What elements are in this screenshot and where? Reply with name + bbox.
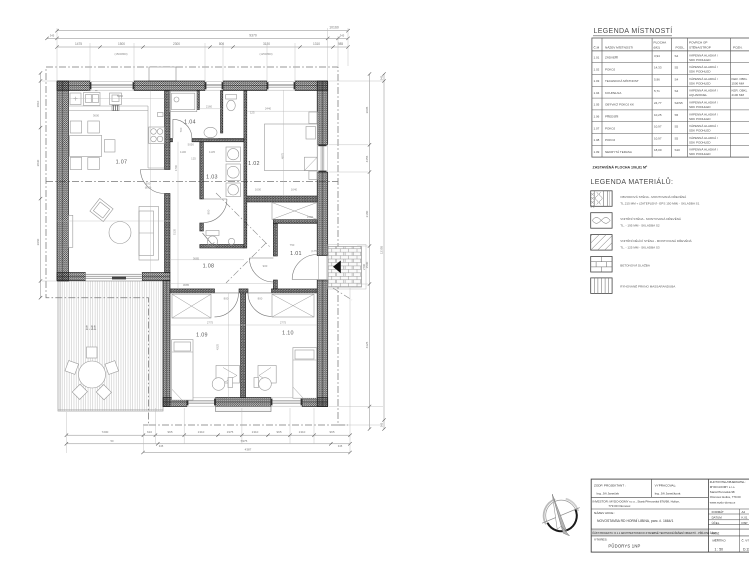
svg-text:50: 50 xyxy=(111,439,114,443)
svg-text:1640: 1640 xyxy=(291,188,298,192)
svg-text:(1500/800): (1500/800) xyxy=(115,52,128,56)
svg-text:NEKRYTÁ TERASA: NEKRYTÁ TERASA xyxy=(605,150,632,154)
svg-text:KER. OBKL: KER. OBKL xyxy=(732,89,748,93)
svg-text:POKOJ: POKOJ xyxy=(605,138,616,142)
svg-text:LEGENDA MATERIÁLŮ:: LEGENDA MATERIÁLŮ: xyxy=(591,177,674,186)
svg-text:800: 800 xyxy=(258,297,263,301)
svg-text:ZODP. PROJEKTANT :: ZODP. PROJEKTANT : xyxy=(594,483,626,487)
svg-text:SDK PODHLED: SDK PODHLED xyxy=(689,58,711,62)
svg-text:2440: 2440 xyxy=(265,107,272,111)
svg-text:750: 750 xyxy=(290,243,295,247)
svg-text:10,97: 10,97 xyxy=(654,136,662,140)
svg-text:S5: S5 xyxy=(675,125,679,129)
svg-text:1975: 1975 xyxy=(227,430,234,434)
svg-text:1500 MM: 1500 MM xyxy=(732,81,745,85)
svg-text:12355: 12355 xyxy=(380,245,384,254)
svg-text:1.03: 1.03 xyxy=(594,79,600,83)
svg-text:TECHNICKÁ MÍSTNOST: TECHNICKÁ MÍSTNOST xyxy=(605,79,639,83)
svg-text:1.03: 1.03 xyxy=(206,175,218,181)
svg-text:4325: 4325 xyxy=(215,343,219,350)
svg-text:1.08: 1.08 xyxy=(203,264,215,270)
svg-text:VNITŘNÍ STĚNA - MONTOVANÁ DŘEV: VNITŘNÍ STĚNA - MONTOVANÁ DŘEVĚNÁ xyxy=(620,216,682,221)
svg-text:3,94: 3,94 xyxy=(654,54,660,58)
svg-text:DSP: DSP xyxy=(742,521,748,525)
svg-text:SDK PODHLED: SDK PODHLED xyxy=(689,70,711,74)
svg-text:800: 800 xyxy=(207,209,211,214)
svg-text:SDK PODHLED: SDK PODHLED xyxy=(689,81,711,85)
svg-text:(1250/800): (1250/800) xyxy=(260,52,273,56)
svg-text:3120: 3120 xyxy=(263,42,270,46)
svg-text:FORMÁT: FORMÁT xyxy=(712,510,724,514)
svg-text:TL. - 195 MM - SKLADBA S2: TL. - 195 MM - SKLADBA S2 xyxy=(620,223,660,227)
svg-text:NÁZEV MÍSTNOSTI: NÁZEV MÍSTNOSTI xyxy=(605,45,633,49)
svg-text:BETONOVÁ DLAŽBA: BETONOVÁ DLAŽBA xyxy=(620,262,651,267)
svg-text:5,71: 5,71 xyxy=(654,89,660,93)
svg-text:OBÝVACÍ POKOJ KK: OBÝVACÍ POKOJ KK xyxy=(605,103,634,107)
svg-text:125: 125 xyxy=(191,157,196,161)
svg-text:5135: 5135 xyxy=(173,228,177,235)
svg-text:VÁPENNÁ HLADKÁ /: VÁPENNÁ HLADKÁ / xyxy=(689,112,718,116)
svg-text:1565: 1565 xyxy=(307,215,314,219)
svg-text:VÁPENNÁ HLADKÁ /: VÁPENNÁ HLADKÁ / xyxy=(689,124,718,128)
svg-text:4875: 4875 xyxy=(281,152,285,159)
svg-text:800: 800 xyxy=(219,42,225,46)
svg-text:14,33: 14,33 xyxy=(654,66,662,70)
svg-text:345: 345 xyxy=(338,444,343,448)
svg-text:MYDO-DOMY s.r.o.: MYDO-DOMY s.r.o. xyxy=(710,485,736,489)
svg-text:PARÉ: PARÉ xyxy=(712,530,720,535)
svg-text:5660: 5660 xyxy=(117,94,124,98)
svg-text:RÝHOVANÉ PRKNO MASSARANDUBA: RÝHOVANÉ PRKNO MASSARANDUBA xyxy=(620,284,676,289)
svg-text:2095: 2095 xyxy=(365,106,369,113)
svg-text:4455: 4455 xyxy=(365,155,369,162)
svg-text:S5: S5 xyxy=(675,66,679,70)
svg-text:POZN.: POZN. xyxy=(733,45,743,49)
svg-text:1.01: 1.01 xyxy=(290,251,302,257)
svg-text:1310: 1310 xyxy=(313,42,320,46)
svg-text:5050: 5050 xyxy=(188,143,195,147)
svg-text:1135: 1135 xyxy=(209,150,215,154)
svg-text:1.07: 1.07 xyxy=(594,126,600,130)
svg-text:ZASTAVĚNÁ PLOCHA 106,81 M²: ZASTAVĚNÁ PLOCHA 106,81 M² xyxy=(593,165,648,170)
svg-text:K.01: K.01 xyxy=(742,516,748,520)
svg-text:1310: 1310 xyxy=(299,430,306,434)
svg-text:10,25: 10,25 xyxy=(654,113,662,117)
svg-text:345: 345 xyxy=(340,34,345,38)
svg-text:1.10: 1.10 xyxy=(282,331,294,337)
svg-text:A4: A4 xyxy=(742,510,746,514)
svg-text:2700: 2700 xyxy=(362,264,366,270)
svg-text:(175): (175) xyxy=(311,249,318,253)
svg-text:VÁPENNÁ HLADKÁ /: VÁPENNÁ HLADKÁ / xyxy=(689,148,718,152)
svg-text:4325: 4325 xyxy=(365,341,369,348)
svg-text:345: 345 xyxy=(380,422,384,427)
svg-text:PLOCHA: PLOCHA xyxy=(654,41,668,45)
svg-text:2775: 2775 xyxy=(207,321,214,325)
svg-text:3685: 3685 xyxy=(183,283,190,287)
svg-text:S5: S5 xyxy=(675,113,679,117)
svg-text:1810: 1810 xyxy=(36,100,40,107)
svg-text:PODL.: PODL. xyxy=(676,45,685,49)
svg-text:STĚNA/STROP: STĚNA/STROP xyxy=(689,44,711,49)
svg-text:125: 125 xyxy=(250,111,255,115)
svg-text:PŘEDSÍŇ: PŘEDSÍŇ xyxy=(605,114,618,119)
svg-text:900: 900 xyxy=(263,264,268,268)
svg-text:4387: 4387 xyxy=(245,448,252,452)
svg-text:VÝKRES:: VÝKRES: xyxy=(594,538,608,542)
svg-text:LEGENDA MÍSTNOSTÍ: LEGENDA MÍSTNOSTÍ xyxy=(594,26,673,35)
svg-text:1310: 1310 xyxy=(252,430,259,434)
svg-text:345: 345 xyxy=(50,34,55,38)
svg-text:PŮDORYS 1NP: PŮDORYS 1NP xyxy=(608,544,640,549)
svg-text:1.04: 1.04 xyxy=(184,120,196,126)
svg-text:800: 800 xyxy=(224,297,229,301)
svg-text:Ing. Jiří Janeček: Ing. Jiří Janeček xyxy=(597,491,620,495)
svg-text:1500: 1500 xyxy=(118,42,125,46)
svg-text:1.02: 1.02 xyxy=(248,161,260,167)
svg-text:1.11: 1.11 xyxy=(85,326,96,332)
svg-text:345: 345 xyxy=(380,75,384,80)
svg-text:SDK PODHLED: SDK PODHLED xyxy=(689,117,711,121)
svg-text:965: 965 xyxy=(329,430,334,434)
svg-text:2160: 2160 xyxy=(206,105,213,109)
svg-text:POKOJ: POKOJ xyxy=(605,67,616,71)
svg-text:POKOJ: POKOJ xyxy=(605,126,616,130)
svg-text:2180: 2180 xyxy=(365,210,369,217)
svg-text:www.mydo-domy.cz: www.mydo-domy.cz xyxy=(710,500,736,504)
svg-text:ČÁST PROJEKTU: D.1.1 ARCHITEKT: ČÁST PROJEKTU: D.1.1 ARCHITEKTONICKO-STA… xyxy=(592,532,717,535)
svg-text:VÁPENNÁ HLADKÁ /: VÁPENNÁ HLADKÁ / xyxy=(689,77,718,81)
svg-text:2100 MM: 2100 MM xyxy=(732,93,745,97)
svg-text:3600: 3600 xyxy=(93,114,100,118)
svg-text:610: 610 xyxy=(147,430,152,434)
svg-text:S4: S4 xyxy=(675,89,679,93)
svg-text:ZHOTOVITEL/OBJEDNATEL:: ZHOTOVITEL/OBJEDNATEL: xyxy=(710,480,746,484)
svg-text:KOUPELNA: KOUPELNA xyxy=(605,91,621,95)
svg-text:VÁPENNÁ HLADKÁ /: VÁPENNÁ HLADKÁ / xyxy=(689,101,718,105)
svg-text:24,77: 24,77 xyxy=(654,101,662,105)
svg-text:S5: S5 xyxy=(675,136,679,140)
svg-text:SDK PODHLED: SDK PODHLED xyxy=(689,129,711,133)
svg-text:SDK PODHLED: SDK PODHLED xyxy=(689,152,711,156)
svg-text:1.09: 1.09 xyxy=(196,333,208,339)
svg-text:VÁPENNÁ HLADKÁ /: VÁPENNÁ HLADKÁ / xyxy=(689,65,718,69)
svg-text:VYPRACOVAL:: VYPRACOVAL: xyxy=(655,483,677,487)
svg-text:345: 345 xyxy=(159,444,164,448)
svg-text:1475: 1475 xyxy=(75,42,82,46)
svg-text:D.11: D.11 xyxy=(743,548,749,552)
svg-text:INVESTOR: MYDO-DOMY s.r.o., St: INVESTOR: MYDO-DOMY s.r.o., Stará Přerov… xyxy=(593,500,680,504)
svg-text:SDK PODHLED: SDK PODHLED xyxy=(689,140,711,144)
svg-text:(800): (800) xyxy=(145,185,152,189)
svg-text:NOVOSTAVBA RD HORNÍ LIBINA, pa: NOVOSTAVBA RD HORNÍ LIBINA, parc. č. 166… xyxy=(597,519,673,523)
svg-text:9370: 9370 xyxy=(249,34,257,38)
svg-text:1.09: 1.09 xyxy=(594,150,600,154)
svg-text:3685: 3685 xyxy=(193,257,200,261)
svg-text:TL. - 125 MM - SKLADBA S3: TL. - 125 MM - SKLADBA S3 xyxy=(620,245,660,249)
svg-text:(M2): (M2) xyxy=(654,45,660,49)
svg-text:S4: S4 xyxy=(675,77,679,81)
svg-text:5,96: 5,96 xyxy=(654,77,660,81)
svg-text:1700: 1700 xyxy=(174,164,178,171)
svg-text:1310: 1310 xyxy=(198,430,205,434)
svg-text:965: 965 xyxy=(167,430,172,434)
svg-text:965: 965 xyxy=(276,430,281,434)
svg-text:985: 985 xyxy=(338,42,344,46)
svg-text:POVRCH ÚP: POVRCH ÚP xyxy=(689,41,707,45)
svg-text:TL.215 MM + (ZATEPLENÍ - EPS 1: TL.215 MM + (ZATEPLENÍ - EPS 150 MM) - S… xyxy=(620,202,699,206)
svg-text:2300: 2300 xyxy=(173,42,180,46)
svg-text:ÚČEL: ÚČEL xyxy=(712,520,720,525)
svg-text:DATUM: DATUM xyxy=(712,516,723,520)
svg-text:VÁPENNÁ HLADKÁ /: VÁPENNÁ HLADKÁ / xyxy=(689,53,718,57)
svg-text:10160: 10160 xyxy=(329,26,339,30)
svg-text:OBVODOVÁ STĚNA - MONTOVANÁ DŘE: OBVODOVÁ STĚNA - MONTOVANÁ DŘEVĚNÁ xyxy=(620,194,687,199)
svg-text:NÁZEV AKCE :: NÁZEV AKCE : xyxy=(594,511,615,515)
svg-text:2775: 2775 xyxy=(280,321,287,325)
svg-text:1.02: 1.02 xyxy=(594,67,600,71)
svg-text:1.01: 1.01 xyxy=(594,56,600,60)
svg-text:SDK PODHLED: SDK PODHLED xyxy=(689,105,711,109)
svg-text:Stará Přerovská 98: Stará Přerovská 98 xyxy=(710,490,735,494)
svg-text:MĚŘÍTKO: MĚŘÍTKO xyxy=(713,538,727,543)
svg-text:VÁPENNÁ HLADKÁ /: VÁPENNÁ HLADKÁ / xyxy=(689,136,718,140)
svg-text:VNITŘNÍ DĚLÍCÍ STĚNA - MONTOVA: VNITŘNÍ DĚLÍCÍ STĚNA - MONTOVANÁ DŘEVĚNÁ xyxy=(620,238,692,243)
svg-text:18,00: 18,00 xyxy=(654,148,662,152)
svg-text:S10: S10 xyxy=(675,148,681,152)
svg-text:KER. OBKL: KER. OBKL xyxy=(732,77,748,81)
svg-text:Olomouc Holice, 779 00: Olomouc Holice, 779 00 xyxy=(710,495,741,499)
svg-text:S4/S5: S4/S5 xyxy=(675,101,684,105)
svg-text:7200: 7200 xyxy=(102,430,109,434)
svg-text:1.06: 1.06 xyxy=(594,115,600,119)
svg-text:VÁPENNÁ HLADKÁ /: VÁPENNÁ HLADKÁ / xyxy=(689,89,718,93)
svg-text:1.07: 1.07 xyxy=(116,160,128,166)
svg-text:1.08: 1.08 xyxy=(594,138,600,142)
svg-text:779 00 Olomouc: 779 00 Olomouc xyxy=(608,504,631,508)
svg-text:700: 700 xyxy=(179,127,183,132)
svg-text:1.04: 1.04 xyxy=(594,91,600,95)
svg-text:10,97: 10,97 xyxy=(654,125,662,129)
svg-text:S4: S4 xyxy=(675,54,679,58)
svg-text:Č.M: Č.M xyxy=(594,44,600,49)
svg-text:AQUAPANEL: AQUAPANEL xyxy=(689,93,707,97)
svg-text:2830: 2830 xyxy=(36,159,40,166)
svg-text:Ing. Jiří Janečková: Ing. Jiří Janečková xyxy=(655,491,681,495)
svg-text:1 : 50: 1 : 50 xyxy=(715,548,724,552)
svg-text:1100: 1100 xyxy=(180,150,186,154)
svg-text:1600: 1600 xyxy=(255,188,262,192)
svg-text:ZÁDVEŘÍ: ZÁDVEŘÍ xyxy=(605,55,618,60)
svg-text:Č. VÝK: Č. VÝK xyxy=(742,538,749,543)
svg-text:1.05: 1.05 xyxy=(594,103,600,107)
svg-text:2960: 2960 xyxy=(36,238,40,245)
